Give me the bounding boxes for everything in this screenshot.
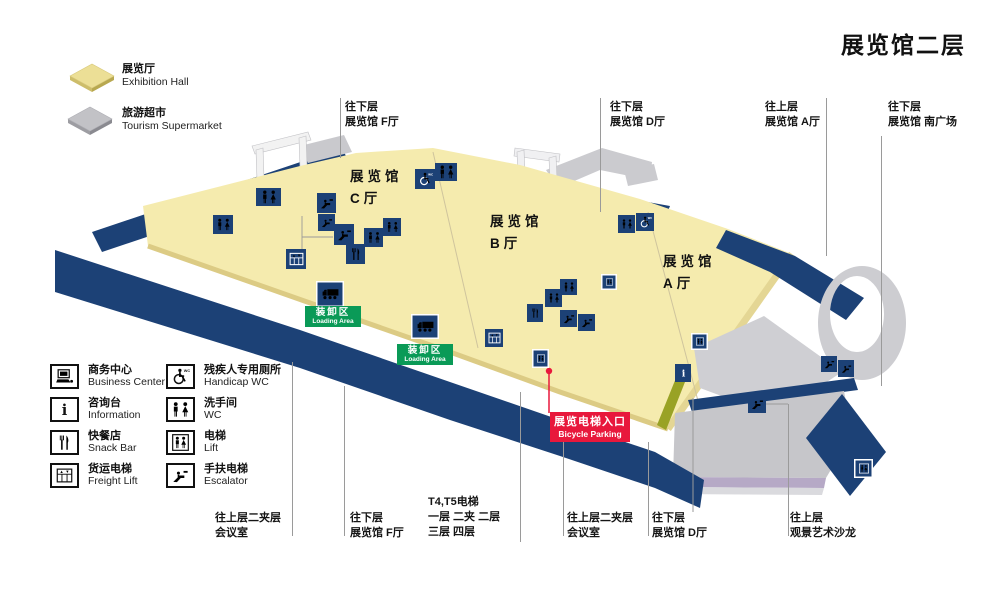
legend-exhibition-hall <box>68 60 116 101</box>
lift-icon <box>166 430 195 455</box>
legend-row-text: 商务中心Business Center <box>88 364 165 389</box>
snack-bar-icon <box>50 430 79 455</box>
legend-row: 快餐店Snack Bar <box>50 430 165 454</box>
legend-row-zh: 电梯 <box>204 430 226 442</box>
legend-row-en: Escalator <box>204 475 248 488</box>
exhibition-floor-map-page: i WC <box>0 0 1008 600</box>
legend-row-en: Freight Lift <box>88 475 138 488</box>
legend-row-text: 电梯Lift <box>204 430 226 455</box>
legend-label-zh: 展览厅 <box>122 63 189 76</box>
legend-row-zh: 洗手间 <box>204 397 237 409</box>
legend-row: 电梯Lift <box>166 430 281 454</box>
gate-post <box>299 136 307 167</box>
entrance-marker-dot <box>546 368 552 374</box>
legend-column: 商务中心Business Center咨询台Information快餐店Snac… <box>50 364 165 496</box>
legend-row-text: 残疾人专用厕所Handicap WC <box>204 364 281 389</box>
legend-row-zh: 货运电梯 <box>88 463 138 475</box>
legend-row-en: Information <box>88 409 141 422</box>
legend-row-text: 快餐店Snack Bar <box>88 430 136 455</box>
business-center-icon <box>50 364 79 389</box>
legend-row-en: Handicap WC <box>204 376 281 389</box>
legend-row: 手扶电梯Escalator <box>166 463 281 487</box>
gate-post <box>256 148 264 180</box>
legend-row: 残疾人专用厕所Handicap WC <box>166 364 281 388</box>
legend-row-zh: 商务中心 <box>88 364 165 376</box>
legend-label-en: Tourism Supermarket <box>122 120 222 133</box>
legend-row-en: Lift <box>204 442 226 455</box>
legend-row-text: 货运电梯Freight Lift <box>88 463 138 488</box>
legend-tourism-supermarket-text: 旅游超市 Tourism Supermarket <box>122 107 222 133</box>
legend-row-zh: 快餐店 <box>88 430 136 442</box>
tourism-supermarket-tile-icon <box>66 103 114 139</box>
legend-row-zh: 咨询台 <box>88 397 141 409</box>
legend-row-en: WC <box>204 409 237 422</box>
circular-ramp <box>818 266 906 380</box>
legend-row: 咨询台Information <box>50 397 165 421</box>
escalator-icon <box>166 463 195 488</box>
exhibition-hall-tile-icon <box>68 60 116 96</box>
legend-row-text: 手扶电梯Escalator <box>204 463 248 488</box>
handicap-wc-icon <box>166 364 195 389</box>
legend-row-text: 咨询台Information <box>88 397 141 422</box>
legend-exhibition-hall-text: 展览厅 Exhibition Hall <box>122 63 189 89</box>
legend-label-zh: 旅游超市 <box>122 107 222 120</box>
page-title: 展览馆二层 <box>841 26 966 60</box>
legend-row: 商务中心Business Center <box>50 364 165 388</box>
legend-row-en: Business Center <box>88 376 165 389</box>
legend-row-zh: 手扶电梯 <box>204 463 248 475</box>
map-canvas: i WC <box>0 0 1008 600</box>
freight-lift-icon <box>50 463 79 488</box>
legend-row-zh: 残疾人专用厕所 <box>204 364 281 376</box>
legend-tourism-supermarket <box>66 103 114 144</box>
legend-row: 洗手间WC <box>166 397 281 421</box>
information-icon <box>50 397 79 422</box>
wc-icon <box>166 397 195 422</box>
legend-column: 残疾人专用厕所Handicap WC洗手间WC电梯Lift手扶电梯Escalat… <box>166 364 281 496</box>
legend-row-en: Snack Bar <box>88 442 136 455</box>
legend-row-text: 洗手间WC <box>204 397 237 422</box>
legend-label-en: Exhibition Hall <box>122 76 189 89</box>
legend-row: 货运电梯Freight Lift <box>50 463 165 487</box>
